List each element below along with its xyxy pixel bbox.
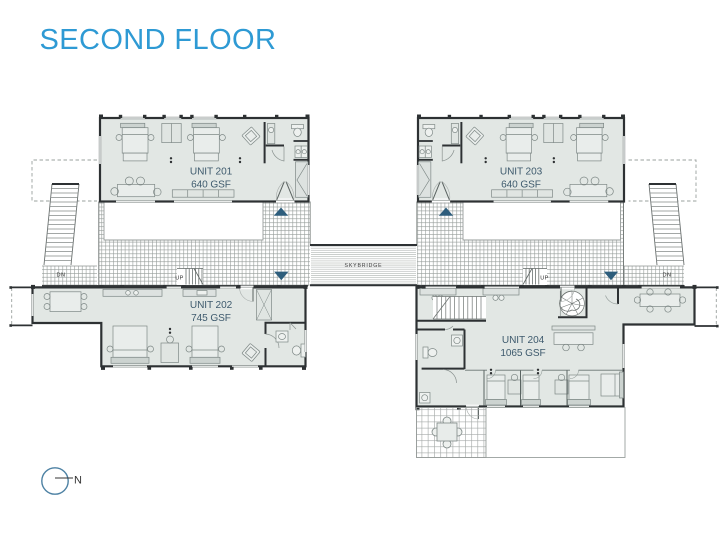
- svg-text:UP: UP: [175, 276, 184, 282]
- svg-text:DN: DN: [663, 273, 672, 279]
- svg-text:UNIT 203: UNIT 203: [500, 167, 543, 178]
- svg-text:SECOND FLOOR: SECOND FLOOR: [40, 24, 277, 56]
- svg-text:DN: DN: [57, 273, 66, 279]
- svg-text:SKYBRIDGE: SKYBRIDGE: [345, 263, 383, 269]
- svg-text:640 GSF: 640 GSF: [501, 180, 541, 191]
- svg-text:UP: UP: [540, 276, 549, 282]
- svg-text:UNIT 204: UNIT 204: [502, 335, 545, 346]
- svg-text:745 GSF: 745 GSF: [191, 313, 231, 324]
- svg-text:UNIT 201: UNIT 201: [190, 167, 233, 178]
- svg-text:UNIT 202: UNIT 202: [190, 300, 233, 311]
- svg-text:N: N: [74, 475, 82, 487]
- svg-text:1065 GSF: 1065 GSF: [500, 348, 545, 359]
- svg-text:640 GSF: 640 GSF: [191, 180, 231, 191]
